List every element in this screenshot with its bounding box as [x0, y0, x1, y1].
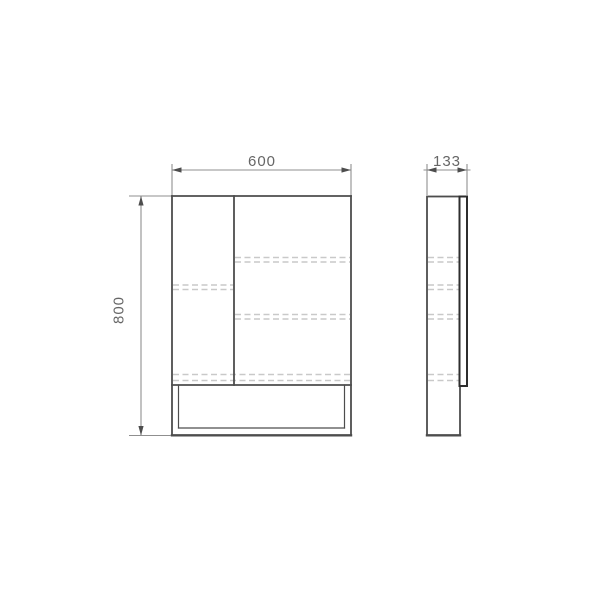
dimension-depth: 133 [424, 153, 471, 195]
drawing-canvas: 600 133 800 [0, 0, 600, 600]
depth-dimension-label: 133 [433, 153, 461, 170]
front-bottom-niche [179, 385, 345, 428]
front-view [172, 196, 351, 436]
width-dimension-label: 600 [248, 153, 276, 170]
height-dimension-label: 800 [111, 296, 128, 324]
dimension-width: 600 [172, 153, 351, 195]
front-carcass-outline [172, 196, 351, 436]
side-door-panel [460, 197, 468, 387]
cabinet-dimension-drawing: 600 133 800 [0, 0, 600, 600]
side-view [427, 197, 467, 436]
front-hidden-shelf-lines [173, 258, 350, 381]
dimension-height: 800 [111, 196, 172, 436]
side-body [427, 197, 460, 436]
